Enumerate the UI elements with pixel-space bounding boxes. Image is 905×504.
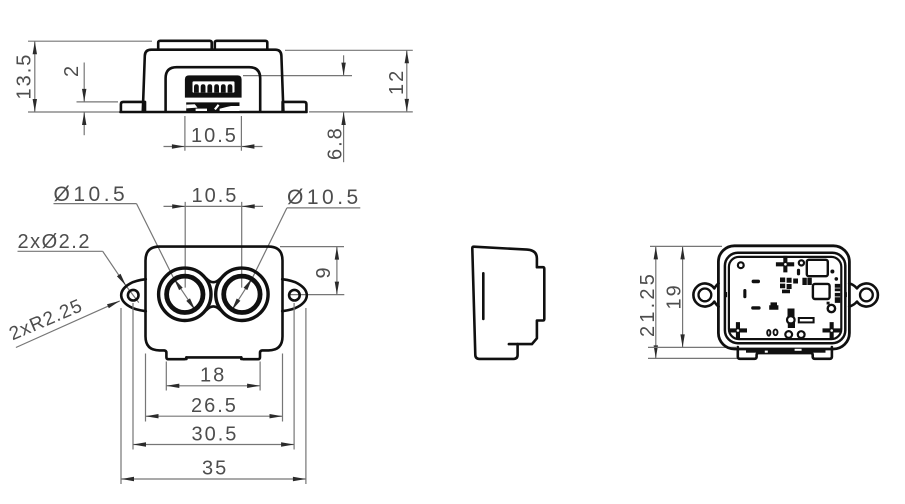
svg-text:2xR2.25: 2xR2.25 — [6, 295, 86, 345]
svg-text:Ø10.5: Ø10.5 — [54, 183, 129, 206]
svg-text:2: 2 — [61, 64, 83, 77]
svg-text:9: 9 — [313, 265, 335, 278]
svg-text:10.5: 10.5 — [191, 125, 238, 147]
svg-text:18: 18 — [200, 365, 226, 387]
svg-text:26.5: 26.5 — [191, 395, 238, 417]
svg-text:35: 35 — [202, 458, 228, 480]
svg-text:6.8: 6.8 — [325, 126, 347, 160]
svg-text:30.5: 30.5 — [192, 424, 239, 446]
svg-text:Ø10.5: Ø10.5 — [287, 186, 362, 209]
svg-text:19: 19 — [664, 283, 686, 309]
svg-text:12: 12 — [386, 69, 408, 95]
svg-text:10.5: 10.5 — [192, 185, 239, 207]
svg-text:21.25: 21.25 — [637, 271, 659, 337]
svg-text:2xØ2.2: 2xØ2.2 — [18, 231, 91, 253]
svg-text:13.5: 13.5 — [14, 53, 36, 100]
